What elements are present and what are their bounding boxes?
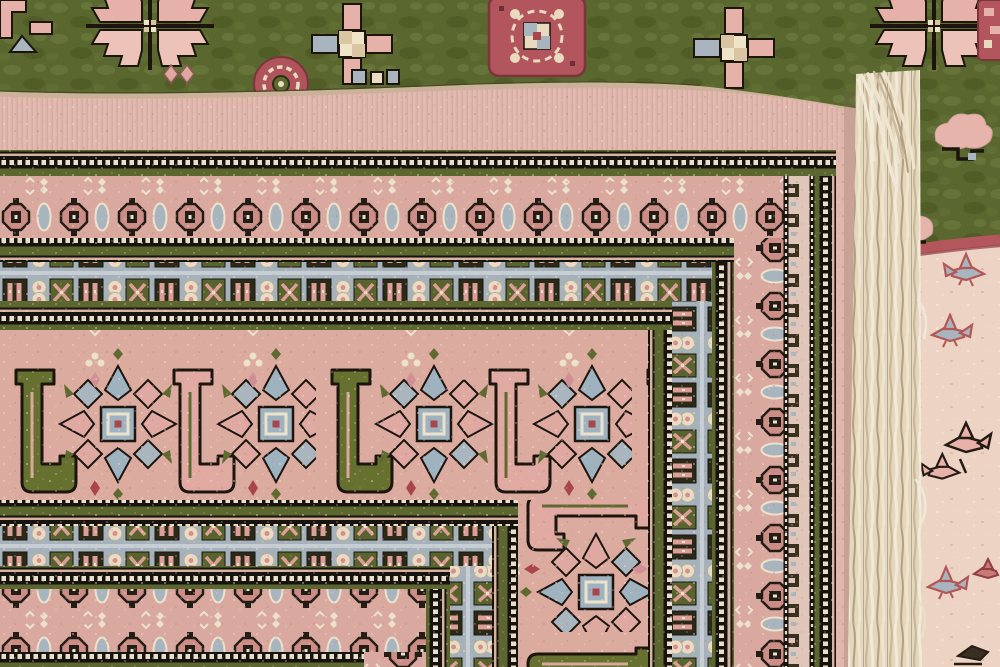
photo-folded-rug bbox=[0, 0, 1000, 667]
rug-photo-svg bbox=[0, 0, 1000, 667]
weave-speckle-texture bbox=[0, 95, 848, 667]
red-sliver-motif bbox=[978, 0, 1000, 60]
grey-squares-motif bbox=[352, 70, 399, 84]
fringe bbox=[844, 70, 926, 667]
red-medallion-motif bbox=[489, 0, 585, 76]
fringe-strip bbox=[848, 70, 922, 667]
